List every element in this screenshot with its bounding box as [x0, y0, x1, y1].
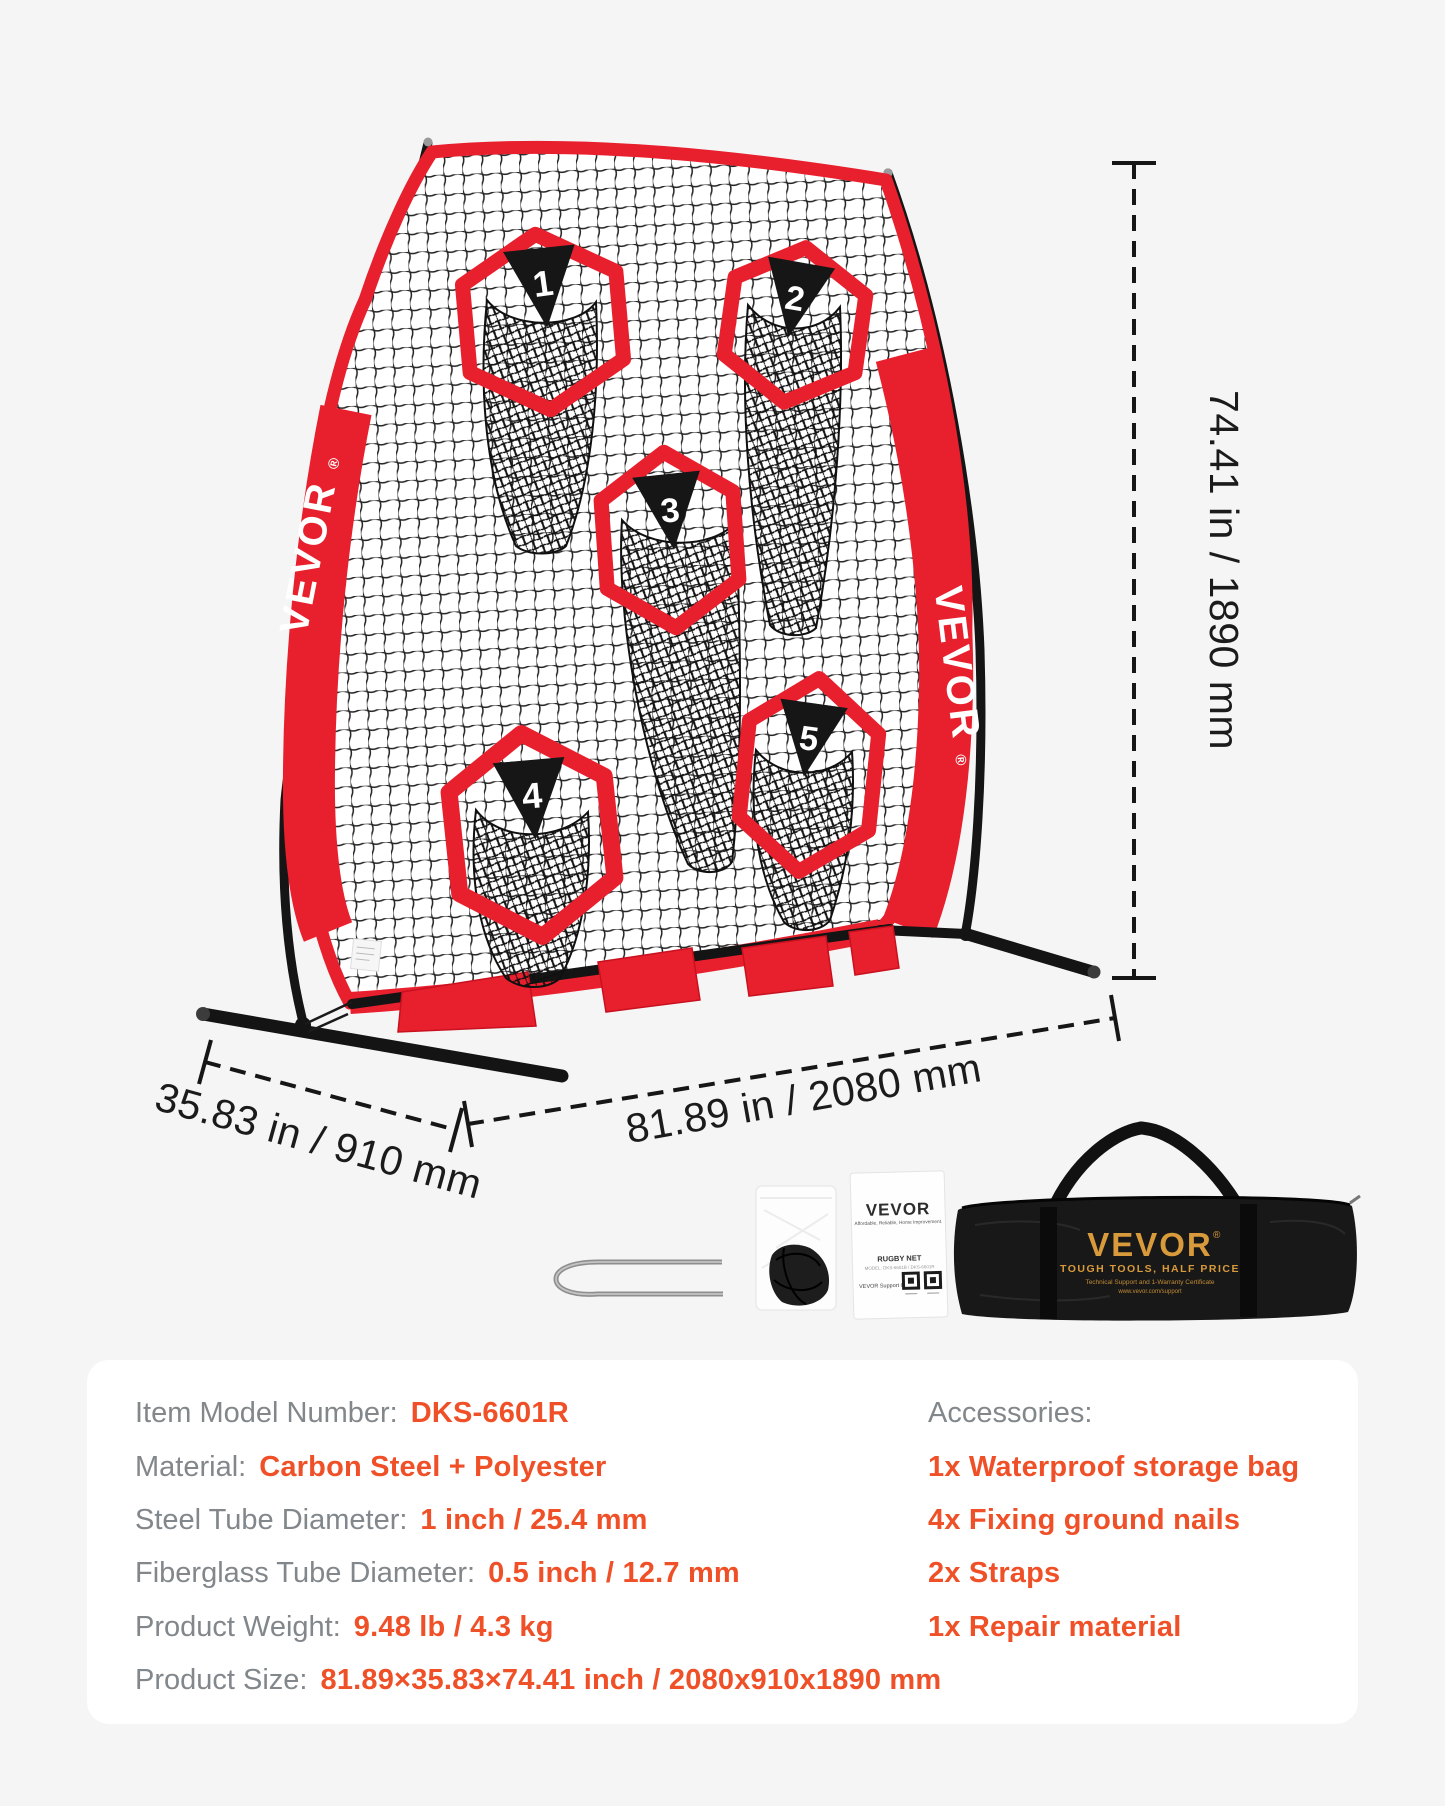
- accessory-row: 2x Straps: [928, 1547, 1299, 1600]
- accessory-item: 1x Repair material: [928, 1611, 1181, 1644]
- spec-value: 9.48 lb / 4.3 kg: [354, 1611, 554, 1644]
- accessory-row: 4x Fixing ground nails: [928, 1494, 1299, 1547]
- storage-bag: VEVOR ® TOUGH TOOLS, HALF PRICE Technica…: [954, 1128, 1360, 1321]
- spec-label: Product Size:: [135, 1664, 307, 1697]
- accessories-title-row: Accessories:: [928, 1387, 1299, 1440]
- spec-row: Product Weight: 9.48 lb / 4.3 kg: [135, 1601, 941, 1654]
- bag-brand: VEVOR: [1087, 1226, 1213, 1263]
- accessory-item: 1x Waterproof storage bag: [928, 1451, 1299, 1484]
- dimension-height: [1112, 163, 1156, 978]
- dimension-width-label: 81.89 in / 2080 mm: [622, 1044, 985, 1152]
- bag-tagline: TOUGH TOOLS, HALF PRICE: [1060, 1263, 1240, 1275]
- ground-stake: [556, 1262, 723, 1294]
- spec-row: Steel Tube Diameter: 1 inch / 25.4 mm: [135, 1494, 941, 1547]
- accessories-title: Accessories:: [928, 1397, 1092, 1430]
- spec-label: Fiberglass Tube Diameter:: [135, 1557, 475, 1590]
- bag-support-line: Technical Support and 1-Warranty Certifi…: [1085, 1279, 1214, 1286]
- spec-label: Material:: [135, 1451, 246, 1484]
- spec-value: 81.89×35.83×74.41 inch / 2080x910x1890 m…: [320, 1664, 941, 1697]
- manual-brand: VEVOR: [866, 1199, 931, 1220]
- spec-value: 1 inch / 25.4 mm: [420, 1504, 647, 1537]
- bag-registered-mark: ®: [1213, 1230, 1221, 1241]
- manual-product-name: RUGBY NET: [877, 1253, 922, 1263]
- accessory-row: 1x Repair material: [928, 1601, 1299, 1654]
- spec-column-right: Accessories: 1x Waterproof storage bag 4…: [928, 1387, 1299, 1654]
- dimension-height-label: 74.41 in / 1890 mm: [1201, 390, 1247, 750]
- spec-value: Carbon Steel + Polyester: [259, 1451, 606, 1484]
- spec-row: Item Model Number: DKS-6601R: [135, 1387, 941, 1440]
- bag-url-line: www.vevor.com/support: [1117, 1289, 1182, 1295]
- product-illustration: VEVOR ® VEVOR ®: [0, 0, 1445, 1355]
- spec-label: Item Model Number:: [135, 1397, 398, 1430]
- repair-material-bag: [756, 1186, 836, 1310]
- care-tag: [351, 939, 382, 972]
- accessory-row: 1x Waterproof storage bag: [928, 1440, 1299, 1493]
- target-number-4: 4: [520, 774, 544, 817]
- spec-label: Steel Tube Diameter:: [135, 1504, 407, 1537]
- spec-panel: Item Model Number: DKS-6601R Material: C…: [87, 1360, 1358, 1724]
- right-panel-registered-mark: ®: [951, 753, 970, 769]
- accessory-item: 2x Straps: [928, 1557, 1060, 1590]
- product-infographic: VEVOR ® VEVOR ®: [0, 0, 1445, 1806]
- accessory-item: 4x Fixing ground nails: [928, 1504, 1240, 1537]
- spec-row: Material: Carbon Steel + Polyester: [135, 1440, 941, 1493]
- spec-row: Fiberglass Tube Diameter: 0.5 inch / 12.…: [135, 1547, 941, 1600]
- target-number-3: 3: [659, 491, 682, 531]
- spec-column-left: Item Model Number: DKS-6601R Material: C…: [135, 1387, 941, 1707]
- spec-row: Product Size: 81.89×35.83×74.41 inch / 2…: [135, 1654, 941, 1707]
- spec-value: 0.5 inch / 12.7 mm: [488, 1557, 740, 1590]
- manual-card: VEVOR Affordable, Reliable, Home Improve…: [850, 1171, 948, 1319]
- spec-value: DKS-6601R: [411, 1397, 569, 1430]
- spec-label: Product Weight:: [135, 1611, 341, 1644]
